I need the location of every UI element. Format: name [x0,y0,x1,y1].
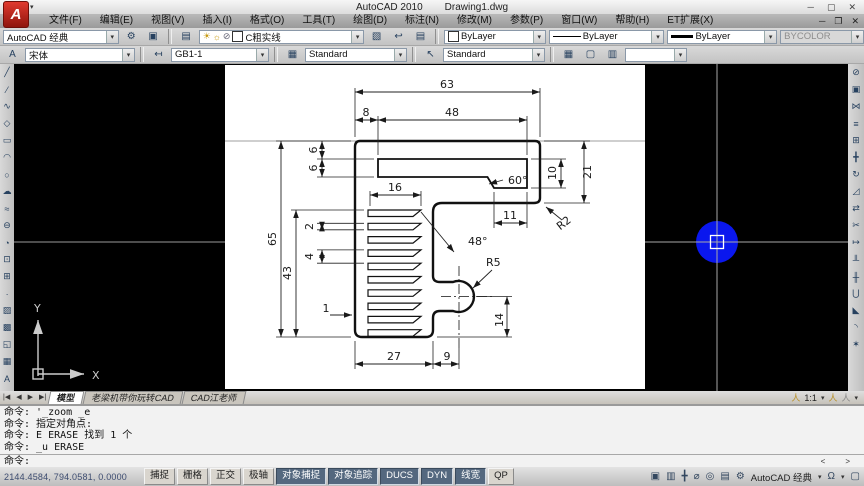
titlebar: AutoCAD 2010 Drawing1.dwg ─ ▢ ✕ [0,0,864,14]
statusbar: 2144.4584, 794.0581, 0.0000 捕捉栅格正交极轴对象捕捉… [0,467,864,486]
minimize-button[interactable]: ─ [808,2,814,12]
command-window[interactable]: 命令: '_zoom _e命令: 指定对角点:命令: E ERASE 找到 1 … [0,404,864,467]
arc-tool[interactable]: ◠ [0,149,14,166]
workspace-value: AutoCAD 经典 [4,30,106,44]
text-style-value: 宋体 [26,48,122,62]
annotation-visibility-icon[interactable]: 人 [828,391,837,404]
circle-tool[interactable]: ○ [0,166,14,183]
separator [274,47,278,62]
table-style-value: Standard [306,49,394,60]
title-app: AutoCAD 2010 [356,2,423,13]
layer-properties-button[interactable]: ▤ [177,28,196,45]
menu-item[interactable]: 插入(I) [193,14,240,28]
text-style-combo[interactable]: 宋体 ▾ [25,48,135,62]
clean-screen-icon[interactable]: ▢ [851,471,860,482]
autocad-logo-icon[interactable]: A [3,1,29,28]
chevron-down-icon[interactable]: ▾ [821,394,825,402]
logo-letter: A [11,6,22,23]
status-toggle[interactable]: 对象捕捉 [276,468,326,485]
revision-cloud-tool[interactable]: ☁ [0,183,14,200]
dim-6b: 6 [307,165,320,172]
dim-10: 10 [546,166,559,180]
dim-43: 43 [281,266,294,280]
chevron-down-icon[interactable]: ▾ [394,49,406,61]
polygon-tool[interactable]: ◇ [0,115,14,132]
menu-item[interactable]: 绘图(D) [344,14,396,28]
separator [140,47,144,62]
tab-layout-2[interactable]: CAD江老师 [182,391,247,404]
chevron-down-icon: ▾ [851,31,863,43]
zoom-icon[interactable]: ⌀ [694,471,700,482]
workspace-gear-icon[interactable]: ⚙ [736,471,745,482]
dim-48: 48 [445,106,459,119]
dim-1: 1 [323,302,330,315]
rotate-tool[interactable]: ↻ [849,166,863,183]
dim-4: 4 [303,253,316,260]
layer-color-swatch [232,31,243,42]
color-combo[interactable]: ByLayer ▾ [444,30,546,44]
showmotion-icon[interactable]: ▤ [720,471,729,482]
point-tool[interactable]: ∙ [0,285,14,302]
workspace-combo[interactable]: AutoCAD 经典 ▾ [3,30,119,44]
dim-style-combo[interactable]: GB1-1 ▾ [171,48,269,62]
status-toggle[interactable]: DYN [421,468,453,485]
layer-on-icon: ☀ [203,31,211,42]
menu-item[interactable]: 窗口(W) [552,14,606,28]
workspace-switcher[interactable]: AutoCAD 经典 [751,470,812,484]
separator [435,29,439,44]
layer-thaw-icon: ☼ [213,32,221,42]
steering-wheel-icon[interactable]: ◎ [706,471,715,482]
model-space-icon[interactable]: ▣ [651,471,660,482]
statusbar-right-cluster: ▣ ▥ ╋ ⌀ ◎ ▤ ⚙ AutoCAD 经典 ▾ Ω ▾ ▢ [651,470,860,484]
paper-sheet [225,65,645,389]
layer-isolate-button[interactable]: ▤ [411,28,430,45]
command-scroll-left-icon[interactable]: < [811,457,836,466]
status-menu-arrow-icon[interactable]: ▾ [841,473,845,481]
status-toggle[interactable]: 线宽 [455,468,486,485]
table-style-button[interactable]: ▦ [283,46,302,63]
model-space-canvas[interactable]: 63 8 48 6 6 65 43 16 2 4 1 60° 10 21 R2 … [14,64,848,391]
dim-63: 63 [440,78,454,91]
layer-combo[interactable]: ☀ ☼ ⊘ C粗实线 ▾ [199,30,365,44]
lineweight-combo[interactable]: ByLayer ▾ [667,30,777,44]
command-input-row[interactable]: 命令: < > [0,454,864,468]
menu-item[interactable]: ET扩展(X) [658,14,722,28]
menu-item[interactable]: 格式(O) [241,14,293,28]
chevron-down-icon[interactable]: ▾ [651,31,663,43]
region-tool[interactable]: ◱ [0,336,14,353]
table-tool[interactable]: ▦ [0,353,14,370]
command-history-line: 命令: _u ERASE [4,442,860,454]
status-toggle[interactable]: 栅格 [177,468,208,485]
chevron-down-icon[interactable]: ▾ [106,31,118,43]
status-toggle[interactable]: 捕捉 [144,468,175,485]
plotstyle-combo: BYCOLOR ▾ [780,30,864,44]
break-at-point-tool[interactable]: ╨ [849,251,863,268]
dim-style-value: GB1-1 [172,49,256,60]
menubar: 文件(F)编辑(E)视图(V)插入(I)格式(O)工具(T)绘图(D)标注(N)… [0,14,864,28]
color-name: ByLayer [461,31,496,42]
dim-60deg: 60° [508,174,528,187]
dim-27: 27 [387,350,401,363]
mleader-style-button[interactable]: ↖ [421,46,440,63]
chamfer-tool[interactable]: ◣ [849,302,863,319]
multiline-text-tool[interactable]: A [0,370,14,387]
command-history-line: 命令: '_zoom _e [4,407,860,419]
menu-item[interactable]: 文件(F) [40,14,91,28]
menu-item[interactable]: 工具(T) [293,14,344,28]
workspace-settings-button[interactable]: ⚙ [122,28,141,45]
layer-lock-icon: ⊘ [223,31,231,42]
toolbar-workspaces-layers-properties: AutoCAD 经典 ▾ ⚙ ▣ ▤ ☀ ☼ ⊘ C粗实线 ▾ ▧ ↩ ▤ By… [0,28,864,46]
dim-21: 21 [581,165,594,179]
tab-nav-button[interactable]: |◀ [0,392,13,404]
ellipse-arc-tool[interactable]: ◔ [0,234,14,251]
chevron-down-icon[interactable]: ▾ [532,49,544,61]
mleader-style-value: Standard [444,49,532,60]
layer-name: C粗实线 [245,30,280,44]
chevron-down-icon[interactable]: ▾ [674,49,686,61]
menu-item[interactable]: 视图(V) [142,14,193,28]
ucs-icon [33,320,84,379]
menu-item[interactable]: 编辑(E) [91,14,142,28]
color-swatch [448,31,459,42]
dim-8: 8 [363,106,370,119]
layout-icon[interactable]: ▥ [666,471,675,482]
doc-minimize-button[interactable]: ─ [819,16,825,26]
status-toggle[interactable]: 极轴 [243,468,274,485]
make-block-tool[interactable]: ⊞ [0,268,14,285]
command-history-line: 命令: 指定对角点: [4,419,860,431]
menu-item[interactable]: 帮助(H) [606,14,658,28]
doc-close-button[interactable]: ✕ [851,16,859,27]
pan-icon[interactable]: ╋ [682,471,688,482]
title-doc: Drawing1.dwg [445,2,508,13]
polyline-tool[interactable]: ∿ [0,98,14,115]
move-tool[interactable]: ╋ [849,149,863,166]
separator [412,47,416,62]
mleader-style-combo[interactable]: Standard ▾ [443,48,545,62]
explode-tool[interactable]: ✶ [849,336,863,353]
fillet-tool[interactable]: ◝ [849,319,863,336]
workspace-save-button[interactable]: ▣ [144,28,163,45]
dim-65: 65 [266,232,279,246]
ellipse-tool[interactable]: ⊖ [0,217,14,234]
color-value: ByLayer [445,31,533,42]
chevron-down-icon[interactable]: ▾ [351,31,363,43]
linetype-name: ByLayer [583,31,618,42]
break-tool[interactable]: ╫ [849,268,863,285]
lineweight-name: ByLayer [695,31,730,42]
tab-nav-button[interactable]: ▶ [25,392,36,404]
menu-item[interactable]: 参数(P) [501,14,552,28]
status-tray-arrow-icon[interactable]: ▾ [854,394,858,402]
join-tool[interactable]: ⋃ [849,285,863,302]
rectangle-tool[interactable]: ▭ [0,132,14,149]
command-prompt[interactable]: 命令: [4,456,811,468]
dim-r5: R5 [486,256,501,269]
tab-nav-button[interactable]: ◀ [13,392,24,404]
status-toggle[interactable]: 对象追踪 [328,468,378,485]
copy-tool[interactable]: ▣ [849,81,863,98]
insert-block-tool[interactable]: ⊡ [0,251,14,268]
maximize-button[interactable]: ▢ [827,2,836,13]
chevron-down-icon[interactable]: ▾ [764,31,776,43]
offset-tool[interactable]: ≡ [849,115,863,132]
toolbar-styles: A 宋体 ▾ ↤ GB1-1 ▾ ▦ Standard ▾ ↖ Standard… [0,46,864,64]
drawing-svg: 63 8 48 6 6 65 43 16 2 4 1 60° 10 21 R2 … [14,64,848,391]
status-toggle[interactable]: DUCS [380,468,419,485]
cell-style-button[interactable]: ▢ [581,46,600,63]
table-style-combo[interactable]: Standard ▾ [305,48,407,62]
hatch-tool[interactable]: ▨ [0,302,14,319]
layer-value: ☀ ☼ ⊘ C粗实线 [200,30,352,44]
ucs-x-label: X [92,369,100,382]
command-scroll-right-icon[interactable]: > [835,457,860,466]
dim-9: 9 [444,350,451,363]
gradient-tool[interactable]: ▩ [0,319,14,336]
dim-16: 16 [388,181,402,194]
chevron-down-icon[interactable]: ▾ [533,31,545,43]
table-cell-button[interactable]: ▥ [603,46,622,63]
chevron-down-icon[interactable]: ▾ [256,49,268,61]
dim-14: 14 [493,313,506,327]
array-tool[interactable]: ⊞ [849,132,863,149]
dim-11: 11 [503,209,517,222]
tab-model[interactable]: 模型 [48,391,85,404]
trim-tool[interactable]: ✂ [849,217,863,234]
lineweight-value: ByLayer [668,31,764,42]
text-style-button[interactable]: A [3,46,22,63]
ucs-y-label: Y [33,302,41,315]
logo-dropdown-arrow-icon[interactable]: ▾ [30,3,34,11]
lock-icon[interactable]: Ω [828,471,835,482]
tab-layout-1[interactable]: 老梁机带你玩转CAD [83,391,184,404]
dim-2: 2 [303,223,316,230]
command-history: 命令: '_zoom _e命令: 指定对角点:命令: E ERASE 找到 1 … [0,406,864,454]
annotation-scale-value[interactable]: 1:1 [804,393,817,403]
chevron-down-icon[interactable]: ▾ [122,49,134,61]
dim-style-button[interactable]: ↤ [149,46,168,63]
layer-states-button[interactable]: ▧ [367,28,386,45]
lineweight-sample [671,35,693,38]
linetype-value: ByLayer [550,31,652,42]
dim-6a: 6 [307,147,320,154]
separator [550,47,554,62]
spline-tool[interactable]: ≈ [0,200,14,217]
status-toggle[interactable]: QP [488,468,514,485]
extend-tool[interactable]: ↦ [849,234,863,251]
menu-item[interactable]: 修改(M) [448,14,501,28]
coordinates-readout[interactable]: 2144.4584, 794.0581, 0.0000 [4,472,142,482]
doc-restore-button[interactable]: ❐ [834,16,842,27]
linetype-sample [553,36,581,37]
construction-line-tool[interactable]: ⁄ [0,81,14,98]
cell-style-combo[interactable]: ▾ [625,48,687,62]
stretch-tool[interactable]: ⇄ [849,200,863,217]
scale-tool[interactable]: ◿ [849,183,863,200]
line-tool[interactable]: ╱ [0,64,14,81]
mirror-tool[interactable]: ⋈ [849,98,863,115]
menu-item[interactable]: 标注(N) [396,14,448,28]
close-button[interactable]: ✕ [848,2,856,13]
annotation-scale-area: 人 1:1 ▾ 人 人 ▾ [791,391,864,404]
table-button[interactable]: ▦ [559,46,578,63]
plotstyle-value: BYCOLOR [781,31,851,42]
separator [168,29,172,44]
annotation-autoscale-icon[interactable]: 人 [841,391,850,404]
chevron-down-icon[interactable]: ▾ [818,473,822,481]
command-history-line: 命令: E ERASE 找到 1 个 [4,430,860,442]
linetype-combo[interactable]: ByLayer ▾ [549,30,665,44]
erase-tool[interactable]: ⊘ [849,64,863,81]
dim-48deg: 48° [468,235,488,248]
status-toggle[interactable]: 正交 [210,468,241,485]
layer-previous-button[interactable]: ↩ [389,28,408,45]
layout-tab-row: |◀◀▶▶| 模型 老梁机带你玩转CAD CAD江老师 人 1:1 ▾ 人 人 … [0,391,864,404]
annotation-scale-icon[interactable]: 人 [791,391,800,404]
